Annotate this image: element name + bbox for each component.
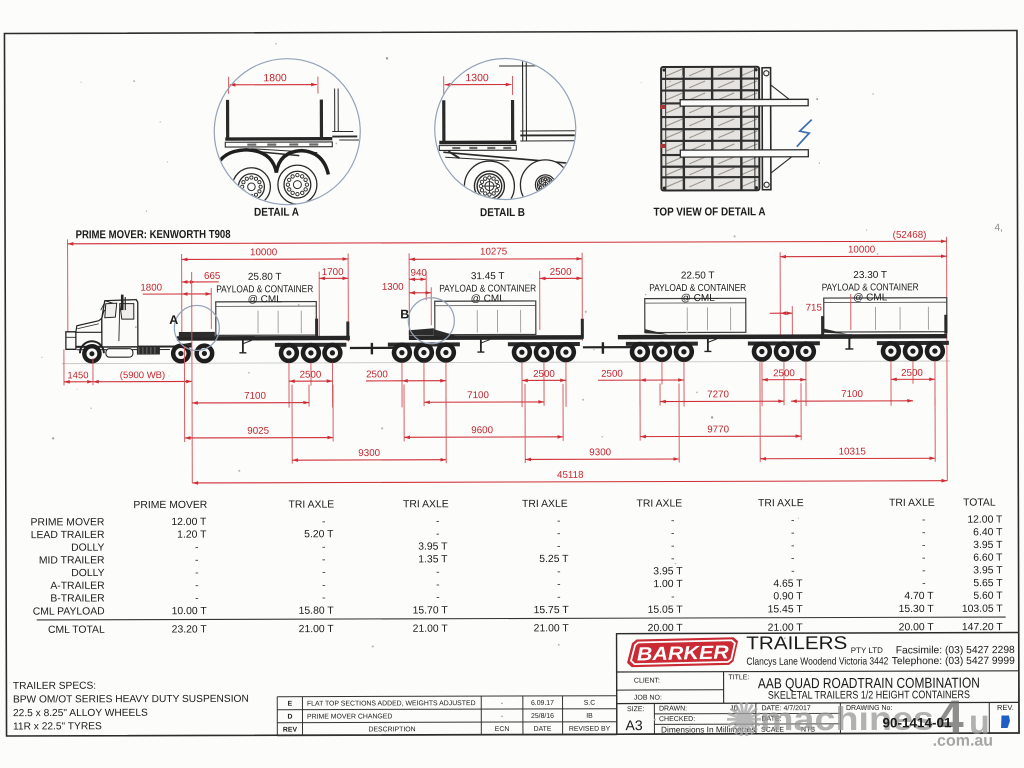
svg-text:3.95 T: 3.95 T (973, 540, 1003, 551)
svg-text:9300: 9300 (358, 448, 380, 459)
svg-text:12.00 T: 12.00 T (967, 515, 1003, 526)
svg-text:1.20 T: 1.20 T (177, 530, 207, 541)
svg-text:23.20 T: 23.20 T (172, 624, 208, 635)
svg-text:FLAT TOP SECTIONS ADDED, WEIGH: FLAT TOP SECTIONS ADDED, WEIGHTS ADJUSTE… (307, 700, 476, 708)
svg-text:-: - (671, 516, 675, 527)
svg-text:2500: 2500 (533, 369, 555, 380)
svg-text:-: - (436, 529, 440, 540)
svg-text:1800: 1800 (140, 283, 162, 294)
svg-text:REV.: REV. (997, 703, 1014, 712)
svg-text:DETAIL A: DETAIL A (254, 207, 299, 219)
svg-text:CML PAYLOAD: CML PAYLOAD (33, 606, 105, 617)
svg-text:-: - (436, 580, 440, 591)
svg-text:-: - (557, 579, 561, 590)
svg-text:TRAILER SPECS:: TRAILER SPECS: (13, 681, 96, 692)
svg-text:IB: IB (586, 713, 593, 720)
svg-text:4,: 4, (995, 223, 1003, 234)
svg-text:-: - (922, 540, 926, 551)
svg-text:1450: 1450 (67, 370, 88, 381)
svg-text:10000: 10000 (848, 244, 876, 255)
svg-text:20.00 T: 20.00 T (899, 622, 935, 633)
svg-text:15.70 T: 15.70 T (413, 605, 449, 616)
svg-text:15.30 T: 15.30 T (899, 604, 935, 615)
svg-text:-: - (922, 578, 926, 589)
svg-text:E: E (288, 701, 293, 708)
svg-text:-: - (671, 592, 675, 603)
svg-text:-: - (322, 555, 326, 566)
svg-text:PRIME MOVER CHANGED: PRIME MOVER CHANGED (307, 713, 392, 720)
svg-text:-: - (322, 517, 326, 528)
svg-text:TITLE:: TITLE: (728, 674, 749, 681)
svg-text:7270: 7270 (707, 389, 729, 400)
svg-text:DRAWN:: DRAWN: (659, 705, 687, 712)
svg-text:MID TRAILER: MID TRAILER (39, 555, 105, 566)
svg-text:-: - (557, 516, 561, 527)
svg-text:TRI AXLE: TRI AXLE (758, 498, 804, 509)
svg-text:2500: 2500 (366, 369, 388, 380)
svg-text:PRIME MOVER: PRIME MOVER (30, 517, 104, 528)
svg-text:2500: 2500 (601, 369, 623, 380)
svg-text:PRIME MOVER: PRIME MOVER (133, 500, 207, 511)
svg-text:21.00 T: 21.00 T (299, 624, 335, 635)
svg-text:3.95 T: 3.95 T (418, 542, 448, 553)
svg-text:22.50 T: 22.50 T (681, 270, 715, 281)
svg-text:9600: 9600 (471, 425, 493, 436)
svg-text:Telephone: (03) 5427 9999: Telephone: (03) 5427 9999 (892, 656, 1015, 667)
svg-text:Clancys Lane Woodend Victoria: Clancys Lane Woodend Victoria 3442 (746, 656, 888, 667)
svg-text:-: - (671, 554, 675, 565)
svg-text:A3: A3 (625, 717, 642, 733)
svg-text:1.35 T: 1.35 T (418, 554, 448, 565)
svg-text:5.65 T: 5.65 T (973, 578, 1003, 589)
svg-text:6.09.17: 6.09.17 (531, 700, 554, 707)
svg-text:10315: 10315 (839, 446, 867, 457)
svg-text:@ CML: @ CML (853, 292, 888, 303)
svg-text:-: - (195, 555, 199, 566)
svg-text:-: - (922, 566, 926, 577)
svg-text:1300: 1300 (465, 72, 489, 84)
svg-text:BPW OM/OT SERIES HEAVY DUTY SU: BPW OM/OT SERIES HEAVY DUTY SUSPENSION (13, 694, 249, 706)
svg-text:(5900 WB): (5900 WB) (120, 370, 165, 381)
svg-text:-: - (557, 541, 561, 552)
svg-text:-: - (195, 568, 199, 579)
svg-text:LEAD TRAILER: LEAD TRAILER (31, 530, 105, 541)
svg-text:TRI AXLE: TRI AXLE (522, 499, 568, 510)
svg-text:-: - (557, 567, 561, 578)
svg-text:-: - (436, 567, 440, 578)
svg-text:-: - (322, 567, 326, 578)
svg-text:-: - (436, 592, 440, 603)
svg-text:B: B (400, 307, 409, 321)
svg-text:TRI AXLE: TRI AXLE (637, 498, 683, 509)
svg-text:665: 665 (204, 271, 221, 282)
svg-text:-: - (791, 528, 795, 539)
svg-text:-: - (671, 541, 675, 552)
svg-text:DOLLY: DOLLY (71, 568, 104, 579)
svg-text:21.00 T: 21.00 T (413, 624, 449, 635)
svg-text:2500: 2500 (773, 368, 795, 379)
svg-text:21.00 T: 21.00 T (534, 623, 570, 634)
svg-text:PRIME MOVER: KENWORTH T908: PRIME MOVER: KENWORTH T908 (76, 229, 232, 241)
svg-text:7100: 7100 (244, 391, 266, 402)
svg-text:Facsimile: (03) 5427 2298: Facsimile: (03) 5427 2298 (896, 645, 1015, 656)
svg-text:DESCRIPTION: DESCRIPTION (368, 726, 415, 733)
svg-text:CLIENT:: CLIENT: (634, 678, 660, 685)
svg-text:TOTAL: TOTAL (963, 498, 996, 509)
svg-text:TOP VIEW OF DETAIL A: TOP VIEW OF DETAIL A (653, 206, 765, 218)
svg-text:1.00 T: 1.00 T (653, 579, 683, 590)
svg-text:12.00 T: 12.00 T (171, 517, 207, 528)
svg-text:2500: 2500 (300, 370, 322, 381)
svg-text:DATE: DATE (534, 726, 552, 733)
svg-text:4.70 T: 4.70 T (904, 591, 934, 602)
svg-text:-: - (671, 528, 675, 539)
svg-text:-: - (322, 542, 326, 553)
svg-text:SIZE:: SIZE: (627, 706, 645, 713)
svg-text:-: - (501, 700, 503, 707)
svg-text:10275: 10275 (480, 247, 508, 258)
svg-text:-: - (791, 541, 795, 552)
svg-text:6.60 T: 6.60 T (973, 553, 1003, 564)
svg-text:9025: 9025 (247, 426, 269, 437)
svg-text:31.45 T: 31.45 T (471, 271, 505, 282)
svg-text:TRI AXLE: TRI AXLE (403, 499, 449, 510)
svg-text:REV: REV (283, 727, 298, 734)
svg-text:(52468): (52468) (893, 230, 927, 241)
svg-text:15.05 T: 15.05 T (648, 605, 684, 616)
svg-text:.com.au: .com.au (933, 733, 994, 750)
svg-text:CML TOTAL: CML TOTAL (48, 625, 105, 636)
svg-text:TRI AXLE: TRI AXLE (889, 498, 935, 509)
svg-text:103.05 T: 103.05 T (962, 604, 1004, 615)
svg-text:S.C: S.C (584, 700, 596, 707)
svg-text:TRAILERS: TRAILERS (746, 632, 847, 653)
svg-text:CHECKED:: CHECKED: (659, 716, 695, 723)
svg-text:@ CML: @ CML (681, 293, 716, 304)
svg-text:5.25 T: 5.25 T (539, 554, 569, 565)
svg-text:REVISED BY: REVISED BY (569, 726, 611, 733)
svg-text:DOLLY: DOLLY (71, 543, 104, 554)
svg-text:@ CML: @ CML (248, 294, 283, 305)
svg-text:10000: 10000 (250, 247, 278, 258)
svg-text:15.45 T: 15.45 T (768, 604, 804, 615)
svg-text:45118: 45118 (557, 470, 584, 481)
svg-text:-: - (501, 713, 503, 720)
svg-text:15.75 T: 15.75 T (534, 605, 570, 616)
svg-text:-: - (791, 515, 795, 526)
svg-text:20.00 T: 20.00 T (648, 623, 684, 634)
svg-text:22.5 x 8.25" ALLOY WHEELS: 22.5 x 8.25" ALLOY WHEELS (13, 708, 148, 719)
svg-text:TRI AXLE: TRI AXLE (289, 500, 335, 511)
svg-text:-: - (922, 553, 926, 564)
svg-text:B-TRAILER: B-TRAILER (50, 593, 105, 604)
svg-text:-: - (557, 529, 561, 540)
svg-text:6.40 T: 6.40 T (973, 527, 1003, 538)
svg-text:3.95 T: 3.95 T (973, 565, 1003, 576)
svg-text:3.95 T: 3.95 T (653, 566, 683, 577)
svg-text:9300: 9300 (589, 447, 611, 458)
svg-text:1700: 1700 (322, 267, 344, 278)
svg-text:2500: 2500 (901, 368, 923, 379)
svg-text:-: - (557, 592, 561, 603)
svg-text:7100: 7100 (841, 389, 863, 400)
svg-text:JOB NO:: JOB NO: (634, 695, 662, 702)
svg-text:-: - (436, 516, 440, 527)
svg-text:-: - (922, 515, 926, 526)
svg-text:11R x 22.5" TYRES: 11R x 22.5" TYRES (13, 721, 102, 732)
svg-text:@ CML: @ CML (471, 294, 506, 305)
svg-text:-: - (195, 593, 199, 604)
svg-text:-: - (791, 553, 795, 564)
svg-text:BARKER: BARKER (637, 642, 730, 665)
svg-text:5.20 T: 5.20 T (304, 529, 334, 540)
svg-text:-: - (791, 566, 795, 577)
svg-text:1800: 1800 (263, 72, 287, 84)
svg-text:15.80 T: 15.80 T (299, 606, 335, 617)
svg-text:90-1414-01: 90-1414-01 (882, 715, 952, 730)
svg-text:147.20 T: 147.20 T (962, 622, 1004, 633)
svg-text:10.00 T: 10.00 T (172, 606, 208, 617)
svg-text:4.65 T: 4.65 T (773, 579, 803, 590)
svg-text:940: 940 (410, 268, 427, 279)
svg-text:DETAIL B: DETAIL B (480, 207, 525, 219)
svg-text:A: A (169, 313, 178, 327)
svg-text:ECN: ECN (495, 726, 510, 733)
svg-text:D: D (287, 714, 292, 721)
svg-text:-: - (322, 580, 326, 591)
svg-text:0.90 T: 0.90 T (773, 591, 803, 602)
svg-text:7100: 7100 (467, 390, 489, 401)
svg-text:5.60 T: 5.60 T (973, 591, 1003, 602)
svg-text:2500: 2500 (550, 267, 572, 278)
svg-text:-: - (195, 580, 199, 591)
svg-text:PTY LTD: PTY LTD (851, 646, 883, 655)
svg-text:1300: 1300 (382, 282, 404, 293)
svg-text:-: - (922, 527, 926, 538)
svg-text:9770: 9770 (707, 424, 729, 435)
svg-text:25.80 T: 25.80 T (248, 272, 282, 283)
svg-text:A-TRAILER: A-TRAILER (50, 581, 105, 592)
svg-text:25/8/16: 25/8/16 (531, 713, 554, 720)
svg-text:23.30 T: 23.30 T (853, 270, 887, 281)
svg-text:-: - (322, 593, 326, 604)
svg-text:-: - (195, 542, 199, 553)
svg-text:715: 715 (806, 303, 823, 314)
